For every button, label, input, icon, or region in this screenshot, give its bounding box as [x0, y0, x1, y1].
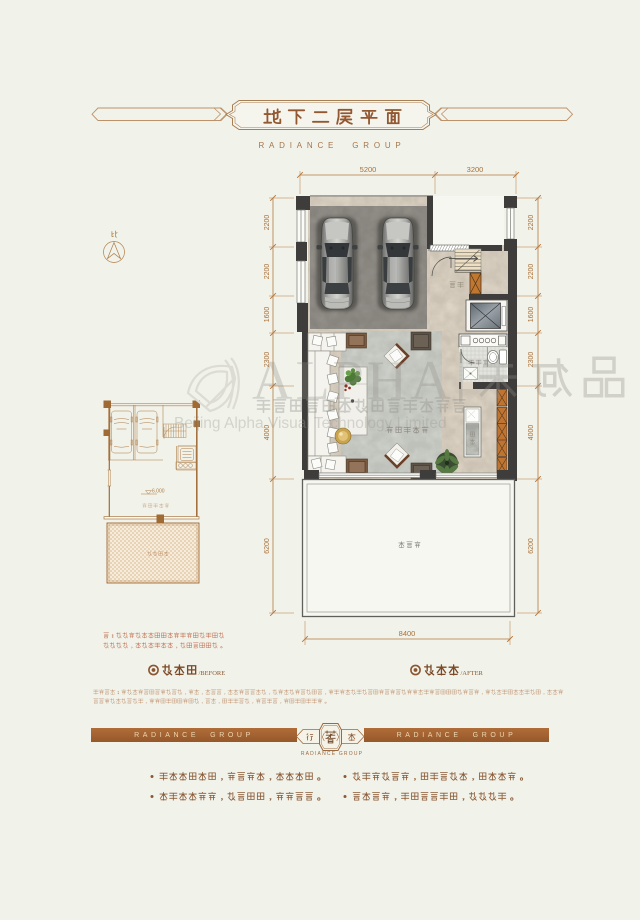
svg-text:2200: 2200: [528, 264, 535, 280]
svg-text:/AFTER: /AFTER: [461, 670, 484, 677]
svg-text:5200: 5200: [360, 165, 377, 174]
svg-text:6200: 6200: [264, 538, 271, 554]
svg-text:Beijing Alpha Visual Technolog: Beijing Alpha Visual Technology Limited: [174, 415, 447, 432]
svg-text:/BEFORE: /BEFORE: [199, 670, 226, 677]
svg-text:3200: 3200: [467, 165, 484, 174]
svg-text:2200: 2200: [264, 215, 271, 231]
svg-text:1600: 1600: [528, 307, 535, 323]
svg-text:2200: 2200: [264, 264, 271, 280]
svg-text:1600: 1600: [264, 307, 271, 323]
svg-text:2200: 2200: [528, 215, 535, 231]
svg-text:6.000: 6.000: [152, 489, 165, 495]
svg-text:6200: 6200: [528, 538, 535, 554]
